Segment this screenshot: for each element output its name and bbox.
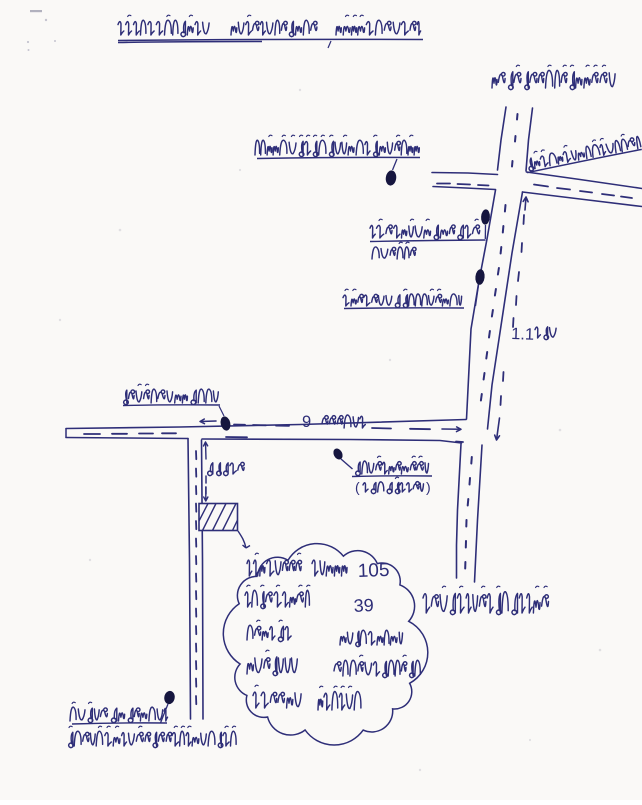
svg-text:): ) xyxy=(426,479,431,495)
svg-text:39: 39 xyxy=(353,595,374,616)
svg-text:9: 9 xyxy=(302,413,311,431)
svg-text:1.1: 1.1 xyxy=(511,325,535,344)
svg-text:105: 105 xyxy=(357,560,389,582)
svg-text:(: ( xyxy=(355,479,360,495)
